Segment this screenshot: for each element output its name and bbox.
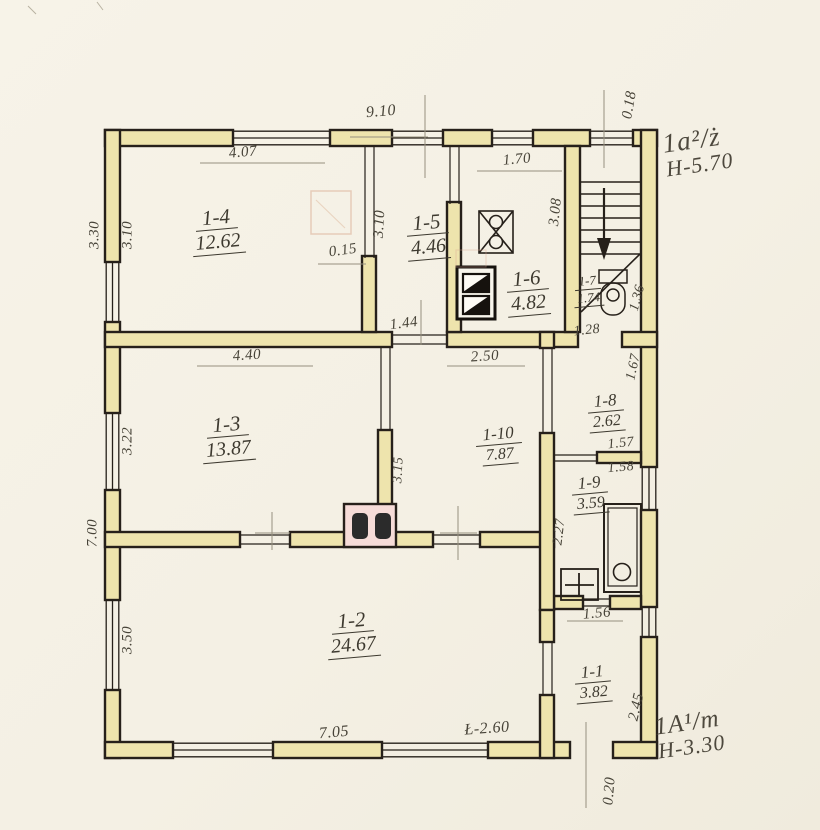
room-area: 3.59 [572, 493, 610, 515]
dim-partition-315: 3.15 [390, 456, 407, 483]
room-label-1-9: 1-9 3.59 [550, 470, 629, 517]
dim-bottom-705: 7.05 [318, 723, 349, 744]
room-area: 1.74 [573, 290, 605, 309]
room-label-1-6: 1-6 4.82 [483, 262, 572, 319]
building-annotation-lower: 1A¹/m H-3.30 [653, 706, 727, 763]
room-area: 13.87 [201, 436, 256, 465]
room-label-1-7: 1-7 1.74 [561, 270, 616, 310]
dim-room110-width: 2.50 [470, 348, 499, 367]
room-number: 1-4 [194, 203, 238, 232]
dim-partition-height: 3.10 [371, 209, 389, 238]
gas-stove [479, 211, 513, 253]
room-area: 7.87 [481, 444, 519, 466]
bathtub [604, 504, 641, 592]
room-number: 1-7 [574, 273, 601, 291]
room-label-1-3: 1-3 13.87 [173, 408, 282, 467]
room-area: 4.46 [406, 234, 451, 262]
dim-room14-width: 4.07 [228, 143, 258, 162]
room-label-1-10: 1-10 7.87 [453, 420, 544, 468]
tile-stove [344, 504, 396, 547]
dim-door-144: 1.44 [389, 314, 419, 334]
room-label-1-5: 1-5 4.46 [383, 206, 472, 263]
dim-room19-227: 2.27 [550, 518, 569, 546]
room-number: 1-1 [573, 660, 611, 684]
building-annotation-upper: 1a²/ż H-5.70 [661, 122, 735, 181]
floor-plan-page: 1-4 12.62 1-5 4.46 1-6 4.82 1-7 1.74 1-3… [0, 0, 820, 830]
dim-left-350: 3.50 [120, 626, 137, 654]
room-label-1-1: 1-1 3.82 [554, 659, 631, 706]
dim-stair-door: 1.28 [573, 322, 601, 341]
room-label-1-8: 1-8 2.62 [566, 388, 645, 435]
dim-left-700: 7.00 [85, 519, 102, 547]
room-number: 1-9 [570, 471, 608, 495]
dim-room15-width: 1.70 [502, 150, 532, 169]
dim-left-inner: 3.10 [120, 221, 137, 249]
room-number: 1-5 [404, 208, 448, 237]
dim-left-322: 3.22 [120, 427, 137, 455]
room-area: 12.62 [191, 229, 246, 258]
room-area: 4.82 [506, 290, 551, 318]
dim-bottom-020: 0.20 [600, 776, 619, 806]
room-area: 24.67 [326, 632, 381, 661]
room-number: 1-10 [475, 422, 522, 446]
dim-total-width: 9.10 [365, 102, 396, 123]
room-label-1-4: 1-4 12.62 [163, 201, 271, 260]
stairs-arrow-head [597, 238, 611, 260]
room-label-1-2: 1-2 24.67 [298, 604, 407, 663]
room-number: 1-3 [204, 410, 248, 439]
dim-left-outer: 3.30 [87, 221, 104, 249]
room-number: 1-8 [586, 389, 624, 413]
dim-room18-157: 1.57 [607, 435, 635, 454]
dim-room13-width: 4.40 [232, 347, 261, 366]
room-number: 1-2 [329, 606, 373, 635]
dim-bottom-260: Ł-2.60 [464, 718, 510, 739]
dim-room19-156: 1.56 [582, 604, 612, 623]
dim-stairwell-height: 3.08 [546, 197, 566, 227]
dim-room18-158: 1.58 [607, 459, 635, 477]
room-number: 1-6 [504, 264, 548, 293]
room-area: 3.82 [575, 682, 613, 704]
room-area: 2.62 [588, 411, 626, 433]
